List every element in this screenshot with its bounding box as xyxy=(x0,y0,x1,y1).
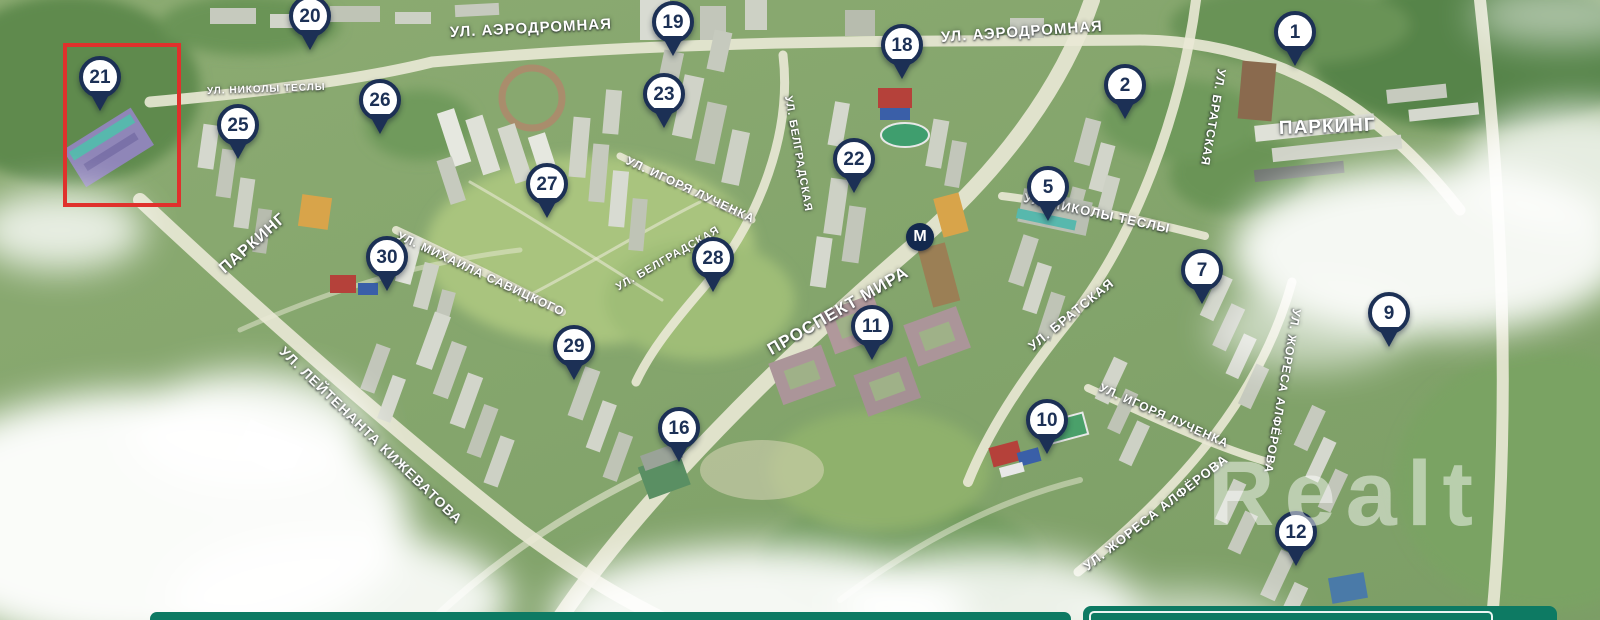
bottom-bar-left-segment xyxy=(150,612,1071,620)
pin-number: 28 xyxy=(702,249,723,268)
map-pin-11[interactable]: 11 xyxy=(851,305,893,360)
map-background xyxy=(0,0,1600,620)
pin-number: 20 xyxy=(299,7,320,26)
pin-number: 2 xyxy=(1120,76,1131,95)
map-stage: УЛ. АЭРОДРОМНАЯУЛ. АЭРОДРОМНАЯУЛ. НИКОЛЫ… xyxy=(0,0,1600,620)
pin-tail xyxy=(667,442,691,462)
pin-number: 7 xyxy=(1197,261,1208,280)
map-pin-27[interactable]: 27 xyxy=(526,163,568,218)
map-pin-7[interactable]: 7 xyxy=(1181,249,1223,304)
map-pin-10[interactable]: 10 xyxy=(1026,399,1068,454)
map-pin-25[interactable]: 25 xyxy=(217,104,259,159)
metro-icon-letter: М xyxy=(913,228,926,246)
pin-tail xyxy=(701,272,725,292)
pin-tail xyxy=(375,271,399,291)
pin-tail xyxy=(298,30,322,50)
pin-tail xyxy=(1113,99,1137,119)
map-pin-21[interactable]: 21 xyxy=(79,56,121,111)
map-pin-28[interactable]: 28 xyxy=(692,237,734,292)
map-pin-2[interactable]: 2 xyxy=(1104,64,1146,119)
pin-tail xyxy=(562,360,586,380)
map-pin-23[interactable]: 23 xyxy=(643,73,685,128)
map-pin-16[interactable]: 16 xyxy=(658,407,700,462)
pin-tail xyxy=(1283,46,1307,66)
map-pin-29[interactable]: 29 xyxy=(553,325,595,380)
map-pin-19[interactable]: 19 xyxy=(652,1,694,56)
pin-number: 26 xyxy=(369,91,390,110)
pin-number: 25 xyxy=(227,116,248,135)
pin-tail xyxy=(652,108,676,128)
map-pin-12[interactable]: 12 xyxy=(1275,511,1317,566)
pin-number: 27 xyxy=(536,175,557,194)
pin-number: 12 xyxy=(1285,523,1306,542)
pin-tail xyxy=(1036,201,1060,221)
map-pin-18[interactable]: 18 xyxy=(881,24,923,79)
map-pin-20[interactable]: 20 xyxy=(289,0,331,50)
map-pin-30[interactable]: 30 xyxy=(366,236,408,291)
pin-tail xyxy=(860,340,884,360)
pin-tail xyxy=(226,139,250,159)
pin-number: 21 xyxy=(89,68,110,87)
pin-tail xyxy=(661,36,685,56)
map-pin-26[interactable]: 26 xyxy=(359,79,401,134)
metro-icon: М xyxy=(906,223,934,251)
pin-tail xyxy=(1035,434,1059,454)
pin-tail xyxy=(1190,284,1214,304)
pin-number: 23 xyxy=(653,85,674,104)
pin-number: 5 xyxy=(1043,178,1054,197)
map-pin-22[interactable]: 22 xyxy=(833,138,875,193)
pin-number: 16 xyxy=(668,419,689,438)
pin-number: 29 xyxy=(563,337,584,356)
pin-number: 19 xyxy=(662,13,683,32)
map-pin-1[interactable]: 1 xyxy=(1274,11,1316,66)
pin-number: 30 xyxy=(376,248,397,267)
bottom-bar-right-segment xyxy=(1083,606,1557,620)
pin-number: 10 xyxy=(1036,411,1057,430)
pin-tail xyxy=(368,114,392,134)
bottom-bar-button-outline[interactable] xyxy=(1089,611,1493,620)
pin-number: 18 xyxy=(891,36,912,55)
pin-number: 11 xyxy=(862,317,882,336)
pin-tail xyxy=(535,198,559,218)
pin-number: 22 xyxy=(843,150,864,169)
pin-number: 1 xyxy=(1290,23,1301,42)
pin-tail xyxy=(842,173,866,193)
pin-tail xyxy=(88,91,112,111)
map-pin-5[interactable]: 5 xyxy=(1027,166,1069,221)
pin-tail xyxy=(1284,546,1308,566)
map-pin-9[interactable]: 9 xyxy=(1368,292,1410,347)
pin-tail xyxy=(1377,327,1401,347)
pin-number: 9 xyxy=(1384,304,1395,323)
pin-tail xyxy=(890,59,914,79)
